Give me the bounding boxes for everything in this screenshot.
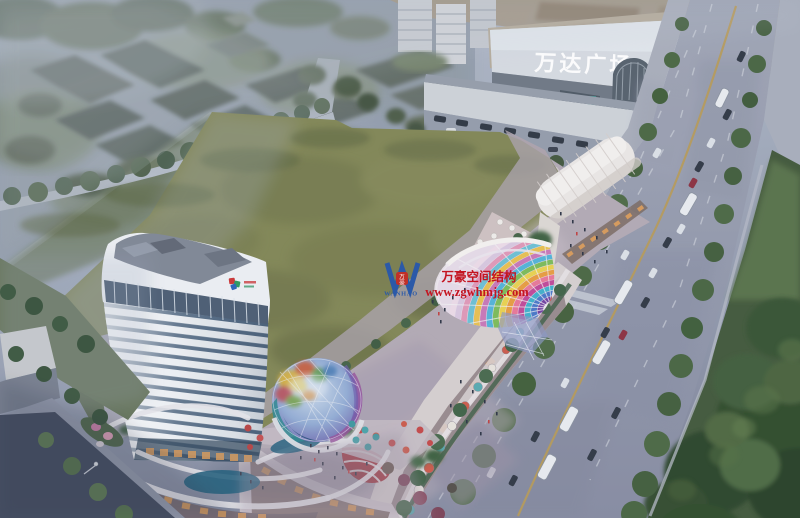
svg-text:豪: 豪 — [399, 279, 405, 287]
svg-text:www.zgwhmjg.com: www.zgwhmjg.com — [425, 285, 529, 299]
svg-text:万豪空间结构: 万豪空间结构 — [440, 269, 516, 284]
svg-text:万: 万 — [399, 274, 405, 281]
svg-text:WANHAO: WANHAO — [384, 291, 418, 298]
